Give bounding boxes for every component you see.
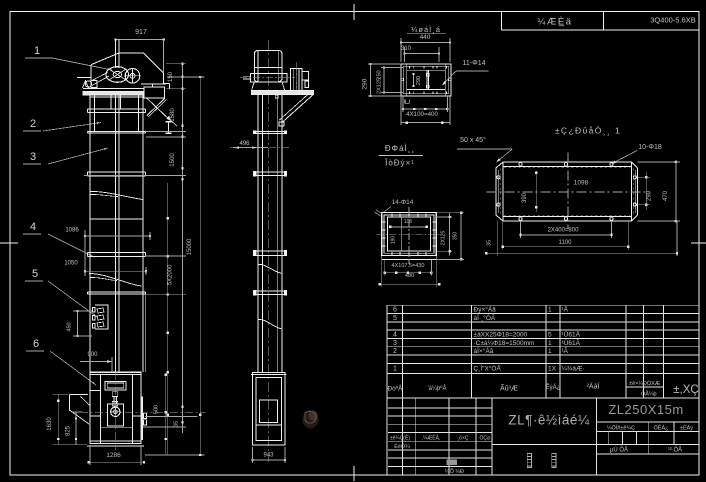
svg-text:±ê¼Ç(Ê): ±ê¼Ç(Ê) bbox=[390, 434, 410, 442]
svg-text:±,XÇ: ±,XÇ bbox=[673, 384, 698, 396]
svg-text:10-Φ18: 10-Φ18 bbox=[638, 144, 662, 151]
svg-text:5X2000: 5X2000 bbox=[168, 264, 174, 285]
svg-text:6: 6 bbox=[33, 338, 39, 350]
svg-text:35: 35 bbox=[487, 240, 493, 246]
svg-text:5: 5 bbox=[393, 315, 397, 322]
svg-text:Ðý×°Áã: Ðý×°Áã bbox=[474, 305, 497, 314]
svg-text:1050: 1050 bbox=[64, 261, 78, 267]
svg-text:4: 4 bbox=[30, 221, 36, 233]
svg-text:1: 1 bbox=[34, 45, 40, 57]
svg-text:2X125: 2X125 bbox=[441, 231, 447, 246]
svg-text:480: 480 bbox=[405, 273, 414, 279]
svg-text:500: 500 bbox=[154, 405, 160, 414]
svg-text:3Q400-5.6XB: 3Q400-5.6XB bbox=[650, 16, 695, 25]
svg-text:1: 1 bbox=[548, 307, 552, 314]
svg-text:·C±á¼Φ18=1500mm: ·C±á¼Φ18=1500mm bbox=[474, 340, 535, 347]
svg-text:310: 310 bbox=[401, 46, 412, 52]
svg-text:¼øáÌ¸á: ¼øáÌ¸á bbox=[411, 25, 441, 34]
svg-text:105: 105 bbox=[404, 219, 413, 225]
svg-text:±ê×¼ÐÒXÆ: ±ê×¼ÐÒXÆ bbox=[629, 380, 661, 387]
svg-text:¼ÖÎñ±ê¼Ç: ¼ÖÎñ±ê¼Ç bbox=[607, 425, 635, 432]
svg-text:50 x 45°: 50 x 45° bbox=[460, 136, 486, 144]
svg-text:1580: 1580 bbox=[170, 108, 176, 122]
svg-text:290: 290 bbox=[416, 76, 422, 85]
svg-text:1: 1 bbox=[548, 340, 552, 347]
svg-text:ÖÊÁ¿: ÖÊÁ¿ bbox=[654, 424, 669, 432]
svg-text:áÏ×°Áã: áÏ×°Áã bbox=[474, 346, 494, 355]
svg-text:5: 5 bbox=[548, 332, 552, 339]
svg-text:2: 2 bbox=[393, 348, 397, 355]
svg-text:2X400=800: 2X400=800 bbox=[548, 228, 580, 234]
svg-text:²ÄáÏ: ²ÄáÏ bbox=[587, 383, 600, 391]
svg-text:35: 35 bbox=[174, 421, 180, 427]
svg-text:·ÖÇø: ·ÖÇø bbox=[478, 435, 490, 442]
svg-text:470: 470 bbox=[663, 190, 669, 201]
svg-text:917: 917 bbox=[135, 29, 147, 36]
svg-text:390: 390 bbox=[522, 192, 528, 203]
svg-text:ÒÃ¼þ: ÒÃ¼þ bbox=[641, 391, 657, 398]
svg-text:ZL250X15m: ZL250X15m bbox=[608, 402, 683, 417]
svg-text:ÐòºÅ: ÐòºÅ bbox=[387, 384, 403, 393]
svg-text:15000: 15000 bbox=[187, 238, 193, 255]
svg-text:¹Ã: ¹Ã bbox=[562, 346, 569, 355]
svg-text:450: 450 bbox=[67, 322, 73, 331]
svg-text:1100: 1100 bbox=[559, 240, 573, 246]
svg-text:3: 3 bbox=[30, 151, 36, 163]
svg-text:4X100=400: 4X100=400 bbox=[406, 111, 438, 118]
svg-text:¹Ã: ¹Ã bbox=[562, 305, 569, 314]
svg-text:1286: 1286 bbox=[106, 452, 121, 459]
svg-text:1X: 1X bbox=[548, 366, 557, 373]
svg-text:4: 4 bbox=[393, 332, 397, 339]
svg-text:1630: 1630 bbox=[47, 417, 53, 431]
svg-text:¹² ÕÅ: ¹² ÕÅ bbox=[668, 447, 682, 454]
svg-text:±ÈÀý: ±ÈÀý bbox=[680, 425, 693, 432]
svg-text:11-Φ14: 11-Φ14 bbox=[463, 60, 486, 67]
svg-text:¹Ü61Ã: ¹Ü61Ã bbox=[562, 338, 581, 347]
svg-text:ÊýÁ¿: ÊýÁ¿ bbox=[546, 383, 561, 391]
svg-text:±áXX25Φ18=2000: ±áXX25Φ18=2000 bbox=[474, 332, 528, 339]
svg-text:290: 290 bbox=[647, 190, 653, 201]
svg-text:ÐΦáÌ¸¸: ÐΦáÌ¸¸ bbox=[385, 144, 415, 153]
svg-text:1086: 1086 bbox=[65, 228, 79, 234]
svg-text:3: 3 bbox=[393, 340, 397, 347]
svg-text:ÉèÓ¼: ÉèÓ¼ bbox=[394, 443, 410, 450]
svg-text:áÏ·¸°ÒÃ: áÏ·¸°ÒÃ bbox=[474, 313, 496, 322]
svg-text:350: 350 bbox=[453, 232, 459, 241]
svg-text:1500: 1500 bbox=[170, 153, 176, 167]
svg-text:1: 1 bbox=[548, 348, 552, 355]
svg-text:µÚ ÕÅ: µÚ ÕÅ bbox=[610, 447, 628, 454]
svg-text:Ç¸Ì"X°ÒÃ: Ç¸Ì"X°ÒÃ bbox=[474, 364, 502, 373]
svg-text:290: 290 bbox=[362, 78, 369, 89]
svg-text:±Ç¿ÐΰåÒ¸¸ 1: ±Ç¿ÐΰåÒ¸¸ 1 bbox=[555, 126, 621, 136]
svg-text:¸ö×Ç: ¸ö×Ç bbox=[458, 436, 469, 442]
svg-text:¼¾áÆ·: ¼¾áÆ· bbox=[562, 366, 585, 373]
svg-text:14-Φ14: 14-Φ14 bbox=[392, 199, 414, 206]
svg-text:440: 440 bbox=[420, 34, 431, 41]
svg-text:5: 5 bbox=[32, 268, 38, 280]
svg-text:6: 6 bbox=[393, 307, 397, 314]
svg-text:2: 2 bbox=[30, 118, 36, 130]
svg-text:825: 825 bbox=[66, 425, 72, 436]
svg-text:1098: 1098 bbox=[574, 180, 589, 187]
svg-text:,¼ÆÊÂ,: ,¼ÆÊÂ, bbox=[422, 434, 441, 442]
svg-text:¹Ü61Ã: ¹Ü61Ã bbox=[562, 330, 581, 339]
svg-text:943: 943 bbox=[263, 453, 274, 459]
svg-text:1: 1 bbox=[393, 366, 397, 373]
svg-text:900: 900 bbox=[87, 352, 98, 358]
svg-text:4X107.5=430: 4X107.5=430 bbox=[392, 263, 425, 269]
svg-text:Ãû³Æ: Ãû³Æ bbox=[500, 384, 518, 393]
svg-text:250: 250 bbox=[377, 70, 383, 79]
svg-text:ÎòÐý×¹: ÎòÐý×¹ bbox=[384, 159, 415, 168]
svg-text:496: 496 bbox=[239, 141, 250, 147]
svg-text:190: 190 bbox=[391, 236, 397, 245]
svg-text:¼Õ ¼Ð: ¼Õ ¼Ð bbox=[445, 468, 464, 475]
svg-text:'á¼þºÅ: 'á¼þºÅ bbox=[427, 385, 446, 392]
svg-text:ZL¶·ê½ìáé¼: ZL¶·ê½ìáé¼ bbox=[508, 413, 590, 428]
svg-text:¼ÆÈ̲ä: ¼ÆÈ̲ä bbox=[537, 17, 572, 28]
